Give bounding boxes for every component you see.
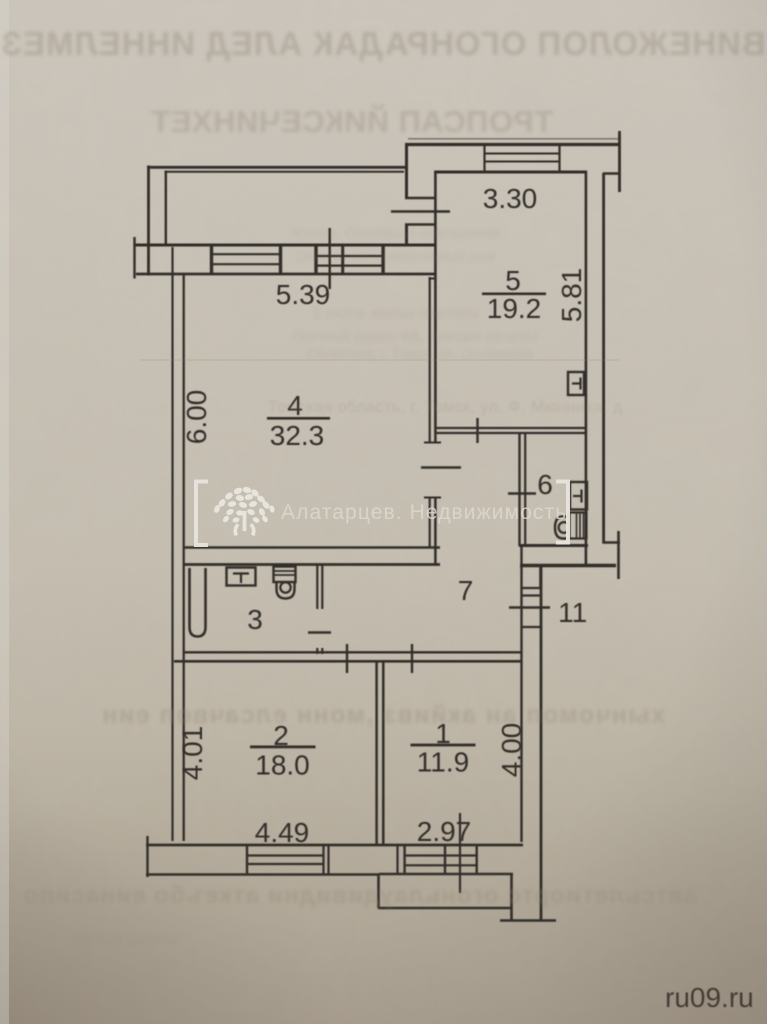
- svg-text:ru09.ru: ru09.ru: [665, 982, 754, 1013]
